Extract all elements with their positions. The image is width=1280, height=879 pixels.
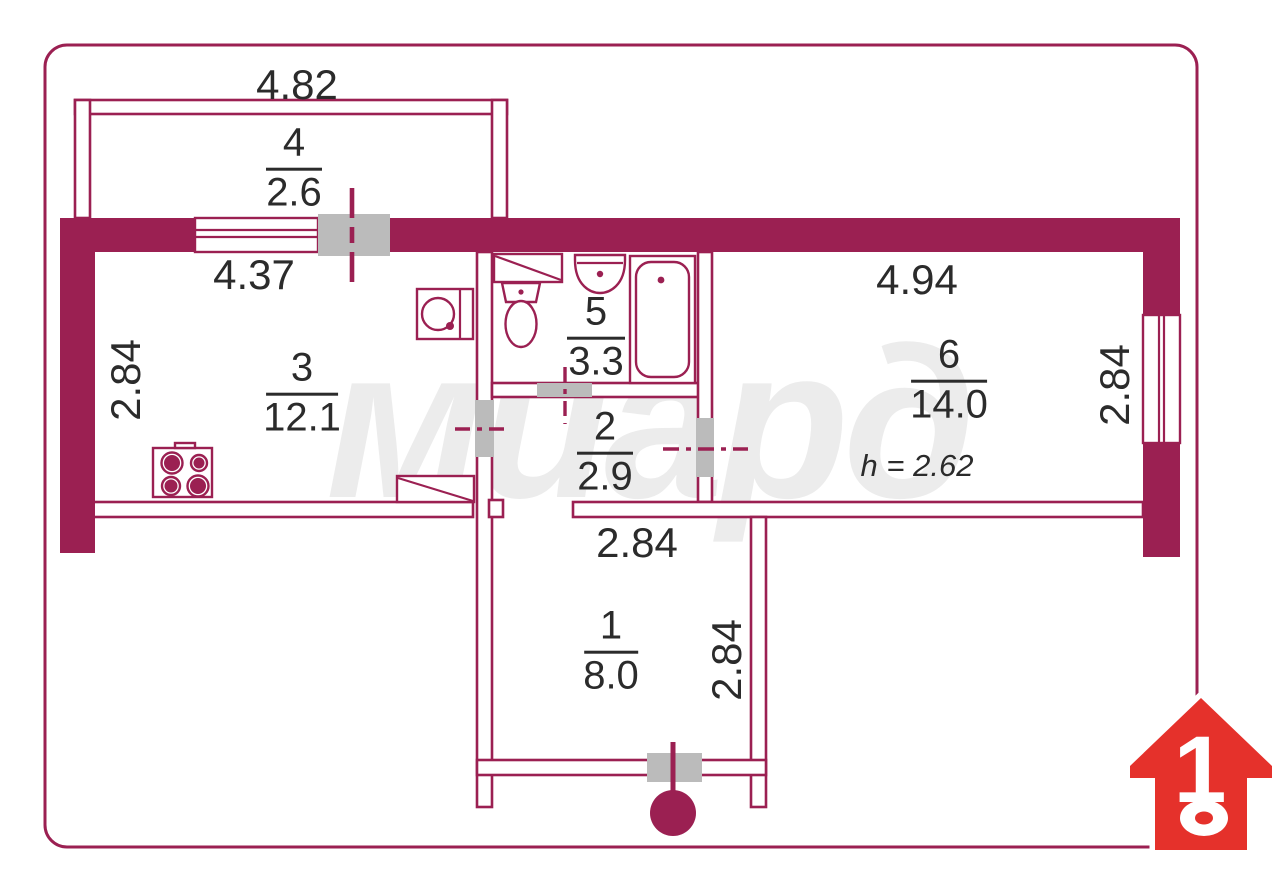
washing-machine-icon bbox=[417, 289, 473, 339]
dim-kitchen-depth: 2.84 bbox=[102, 339, 150, 421]
dim-room6-width: 4.94 bbox=[876, 256, 958, 304]
floor-plan-canvas: миард bbox=[0, 0, 1280, 879]
dim-kitchen-width: 4.37 bbox=[213, 251, 295, 299]
room-label-2: 2 2.9 bbox=[577, 407, 633, 498]
floor-plan: миард bbox=[0, 0, 1280, 879]
bath-shelf-icon bbox=[494, 254, 562, 282]
room-2-area: 2.9 bbox=[577, 457, 633, 498]
dim-ceiling-height: h = 2.62 bbox=[861, 448, 974, 484]
room-6-number: 6 bbox=[938, 335, 960, 376]
balcony-window bbox=[195, 218, 318, 252]
room-4-number: 4 bbox=[283, 123, 305, 164]
dim-room6-depth: 2.84 bbox=[1091, 344, 1139, 426]
stove-icon bbox=[153, 443, 212, 497]
sink-icon bbox=[575, 255, 625, 293]
room-5-number: 5 bbox=[585, 292, 607, 333]
balcony-door-marker bbox=[318, 188, 390, 288]
room6-window bbox=[1143, 315, 1180, 443]
room-5-area: 3.3 bbox=[568, 342, 624, 383]
room-4-area: 2.6 bbox=[266, 173, 322, 214]
room-3-number: 3 bbox=[291, 348, 313, 389]
room-label-3: 3 12.1 bbox=[263, 348, 341, 439]
kitchen-door-leaf-icon bbox=[397, 476, 474, 502]
entrance-door-marker bbox=[647, 742, 702, 836]
dim-hall-width: 2.84 bbox=[596, 519, 678, 567]
bathtub-icon bbox=[630, 256, 695, 383]
room-1-area: 8.0 bbox=[583, 656, 639, 697]
room-label-1: 1 8.0 bbox=[583, 606, 639, 697]
room-6-area: 14.0 bbox=[910, 385, 988, 426]
toilet-icon bbox=[502, 283, 540, 347]
room-3-area: 12.1 bbox=[263, 398, 341, 439]
dim-room1-depth: 2.84 bbox=[703, 619, 751, 701]
room-label-6: 6 14.0 bbox=[910, 335, 988, 426]
room-label-4: 4 2.6 bbox=[266, 123, 322, 214]
logo-house: 1 bbox=[1130, 698, 1272, 850]
dim-balcony-width: 4.82 bbox=[256, 61, 338, 109]
room-label-5: 5 3.3 bbox=[567, 292, 625, 383]
room-1-number: 1 bbox=[600, 606, 622, 647]
room-2-number: 2 bbox=[594, 407, 616, 448]
